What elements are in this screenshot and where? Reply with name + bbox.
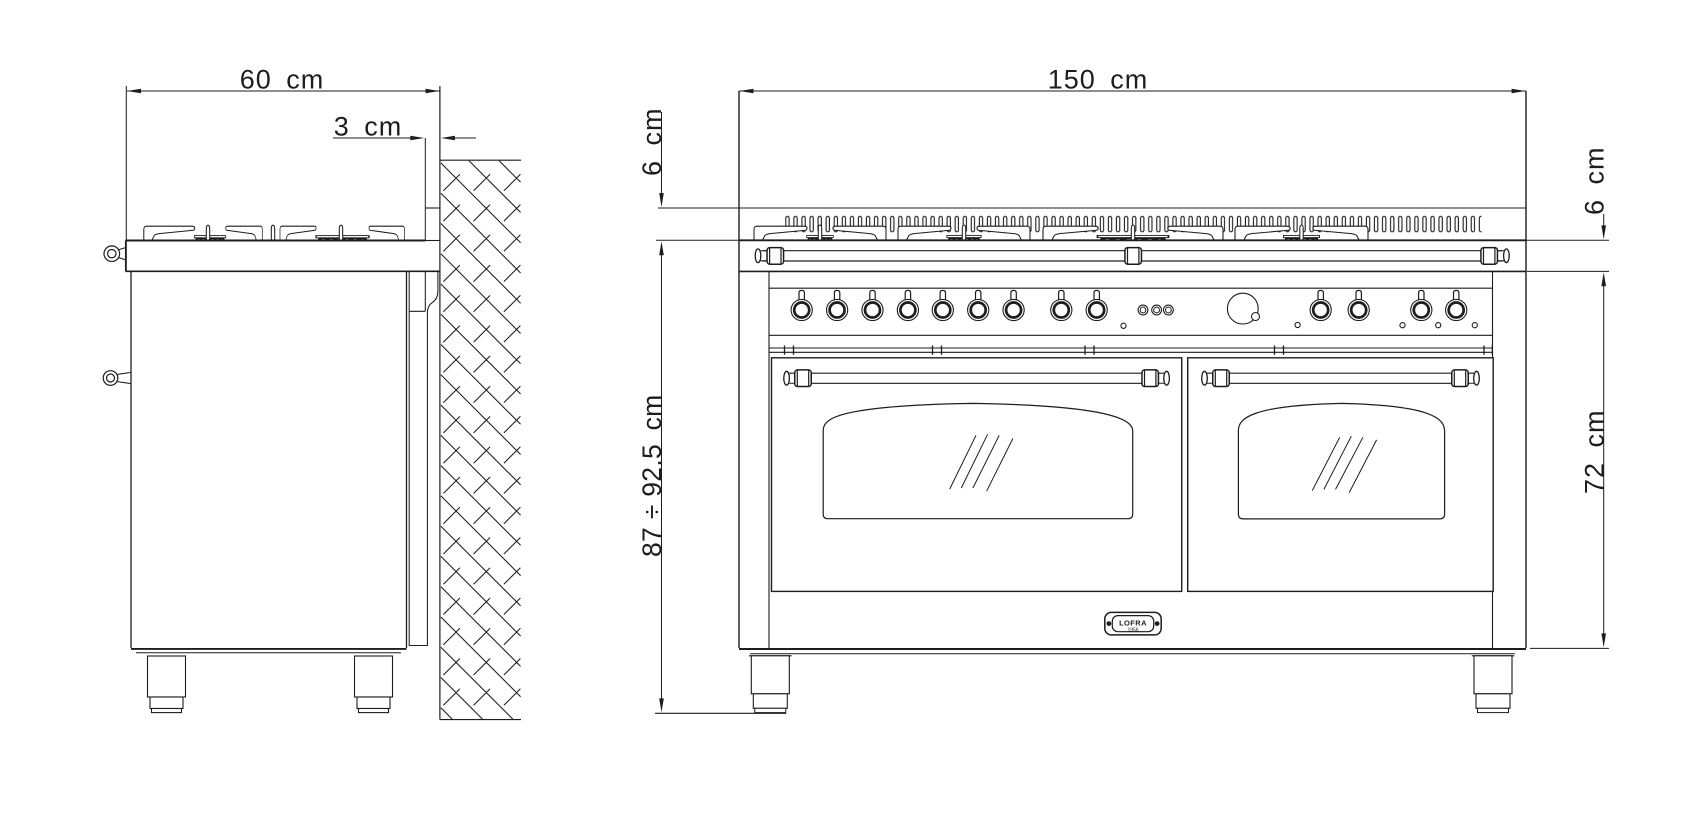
- svg-text:150 cm: 150 cm: [1048, 65, 1149, 95]
- svg-text:72 cm: 72 cm: [1580, 409, 1610, 494]
- svg-text:60 cm: 60 cm: [240, 65, 325, 95]
- svg-text:6 cm: 6 cm: [1580, 146, 1610, 215]
- svg-text:LOFRA: LOFRA: [1119, 619, 1147, 628]
- svg-text:87 ÷ 92.5 cm: 87 ÷ 92.5 cm: [637, 395, 667, 558]
- svg-text:1956: 1956: [1127, 628, 1138, 634]
- svg-text:3 cm: 3 cm: [334, 112, 403, 142]
- svg-text:6 cm: 6 cm: [637, 107, 667, 176]
